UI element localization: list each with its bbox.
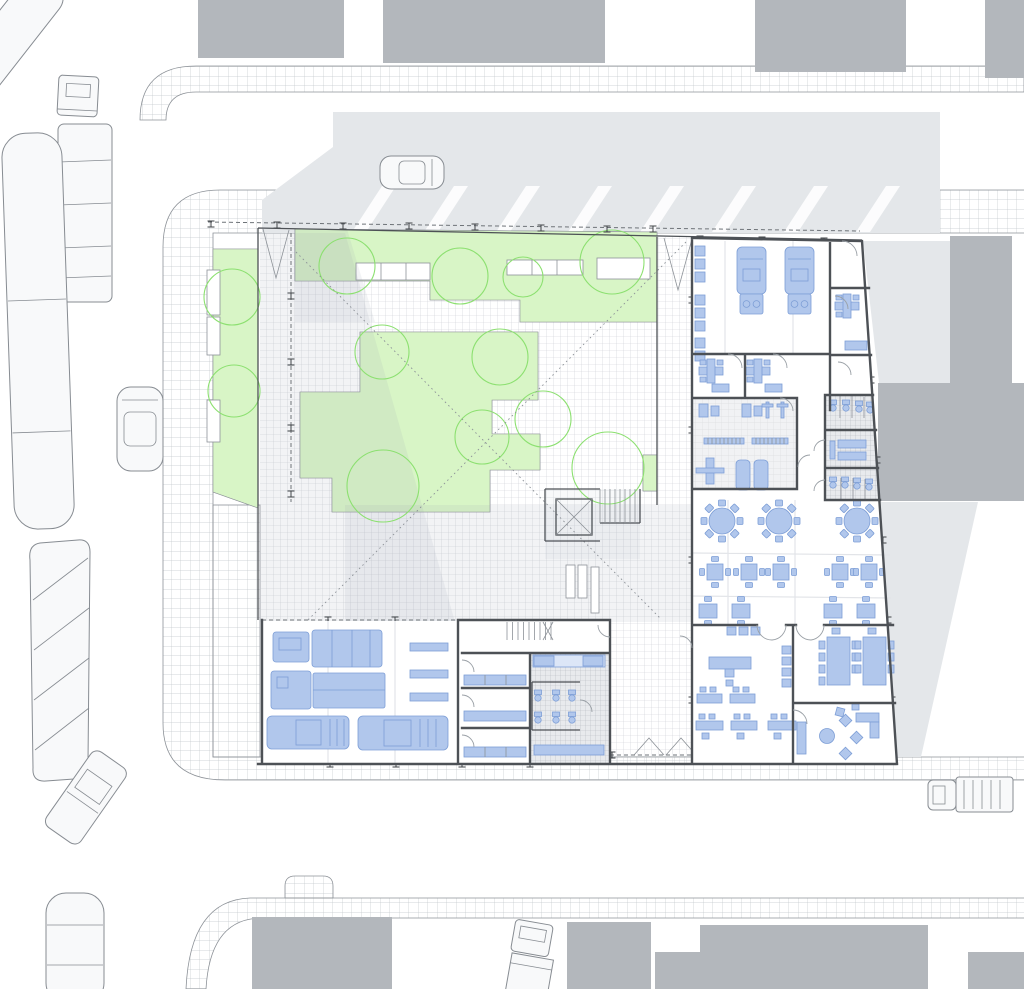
city-bus-bottom: [46, 893, 104, 989]
pickup-truck: [358, 716, 448, 750]
storage-shelf: [410, 643, 448, 651]
ambulance: [737, 247, 766, 314]
sidewalk-bump: [285, 876, 333, 898]
site-plan-drawing: Architectural ground-floor site plan: em…: [0, 0, 1024, 989]
round-table: [836, 500, 878, 542]
striped-traffic-island: [30, 540, 90, 781]
round-table: [701, 500, 743, 542]
wall-lockers: [695, 246, 705, 361]
ambulance: [785, 247, 814, 314]
storage-shelf: [410, 693, 448, 701]
storage-shelf: [410, 670, 448, 678]
couch: [845, 341, 867, 350]
vehicle-carport: [263, 621, 457, 763]
shadow-right-of-building: [863, 241, 950, 383]
pickup-truck: [267, 716, 349, 749]
site-plan-canvas: Architectural ground-floor site plan: em…: [0, 0, 1024, 989]
semi-truck: [273, 630, 382, 667]
couch: [712, 384, 729, 392]
fire-truck: [271, 671, 385, 709]
sidewalk-top: [140, 66, 1024, 120]
box-truck-bottom: [502, 919, 559, 989]
delivery-truck-right: [928, 777, 1013, 812]
sedan-car-top: [380, 156, 444, 189]
changing-and-sanitary-block: [459, 621, 610, 763]
round-table: [758, 500, 800, 542]
couch: [765, 384, 782, 392]
sidewalk-west-widening: [213, 505, 260, 757]
station-wagon-left: [117, 387, 163, 471]
